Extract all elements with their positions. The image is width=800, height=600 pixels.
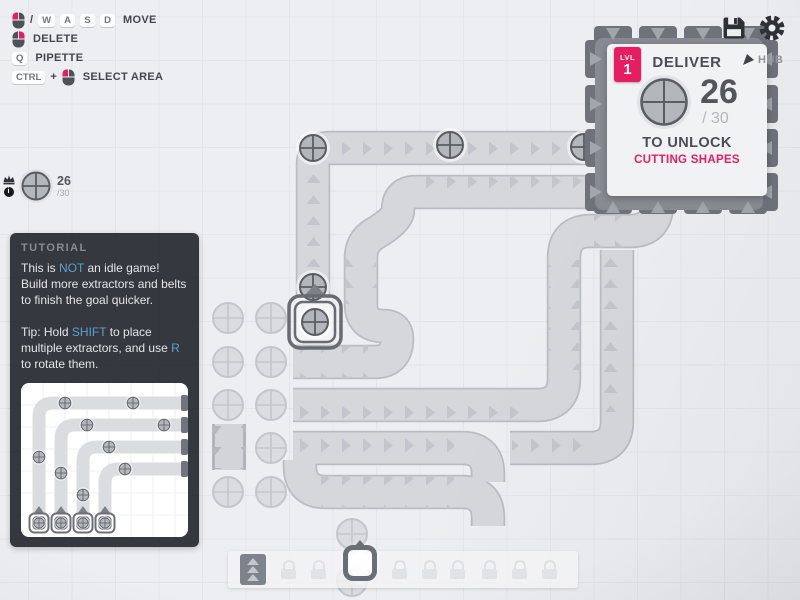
toolbar-locked-slot[interactable] [392, 560, 408, 579]
hub-goal-panel: LVL 1 DELIVER 26 / 30 TO UNLOCK CUTTING … [607, 44, 767, 196]
pipette-label: PIPETTE [35, 52, 83, 64]
crown-icon [3, 175, 15, 185]
pinned-goal: i 26 /30 [2, 167, 71, 205]
key-q: Q [12, 52, 27, 65]
mouse-right-click-icon [12, 31, 25, 48]
marker-arrow-icon [742, 53, 755, 66]
game-screen: / W A S D MOVE DELETE Q PIPETTE CTRL + [0, 0, 800, 600]
key-d: D [100, 14, 115, 27]
tutorial-paragraph-1: This is NOT an idle game! Build more ext… [21, 261, 188, 308]
hub-map-marker: HUB [742, 53, 783, 66]
toolbar-locked-slot[interactable] [450, 560, 466, 579]
tutorial-illustration [21, 383, 188, 537]
delete-label: DELETE [33, 33, 78, 45]
keybind-delete: DELETE [12, 31, 163, 47]
toolbar-locked-slot[interactable] [311, 560, 327, 579]
toolbar-locked-slot[interactable] [281, 560, 297, 579]
select-area-label: SELECT AREA [83, 71, 164, 83]
mouse-left-click-icon [12, 12, 25, 29]
pinned-total: /30 [57, 188, 71, 198]
keybind-pipette: Q PIPETTE [12, 50, 163, 66]
keybind-hints: / W A S D MOVE DELETE Q PIPETTE CTRL + [12, 12, 163, 88]
reward-name: CUTTING SHAPES [607, 154, 767, 166]
tutorial-paragraph-2: Tip: Hold SHIFT to place multiple extrac… [21, 325, 188, 372]
tutorial-panel: TUTORIAL This is NOT an idle game! Build… [10, 233, 199, 547]
key-ctrl: CTRL [12, 71, 45, 84]
slash-separator: / [30, 14, 33, 26]
toolbar-extractor-icon-selected[interactable] [341, 537, 379, 589]
move-label: MOVE [123, 14, 157, 26]
save-icon[interactable] [720, 14, 748, 42]
level-badge: LVL 1 [614, 47, 641, 82]
toolbar-locked-slot[interactable] [542, 560, 558, 579]
keybind-select-area: CTRL + SELECT AREA [12, 69, 163, 85]
plus-separator: + [50, 71, 56, 83]
unlock-label: TO UNLOCK [607, 135, 767, 151]
mouse-left-click-icon [62, 69, 75, 86]
settings-gear-icon[interactable] [758, 14, 786, 42]
building-toolbar [228, 551, 578, 588]
key-a: A [60, 14, 75, 27]
level-number: 1 [623, 62, 631, 77]
keybind-move: / W A S D MOVE [12, 12, 163, 28]
hub-marker-label: HUB [758, 54, 783, 66]
toolbar-locked-slot[interactable] [422, 560, 438, 579]
pinned-shape-circle [17, 167, 55, 205]
key-s: S [80, 14, 95, 27]
tutorial-title: TUTORIAL [21, 242, 188, 254]
toolbar-belt-icon[interactable] [240, 554, 266, 585]
info-icon: i [4, 187, 14, 197]
toolbar-locked-slot[interactable] [482, 560, 498, 579]
goal-count: 26 [700, 76, 738, 108]
goal-shape-circle [636, 74, 692, 130]
key-w: W [38, 14, 55, 27]
pinned-count: 26 [57, 174, 71, 188]
toolbar-locked-slot[interactable] [512, 560, 528, 579]
goal-total: / 30 [702, 110, 738, 128]
down-belt-segment [212, 424, 246, 470]
